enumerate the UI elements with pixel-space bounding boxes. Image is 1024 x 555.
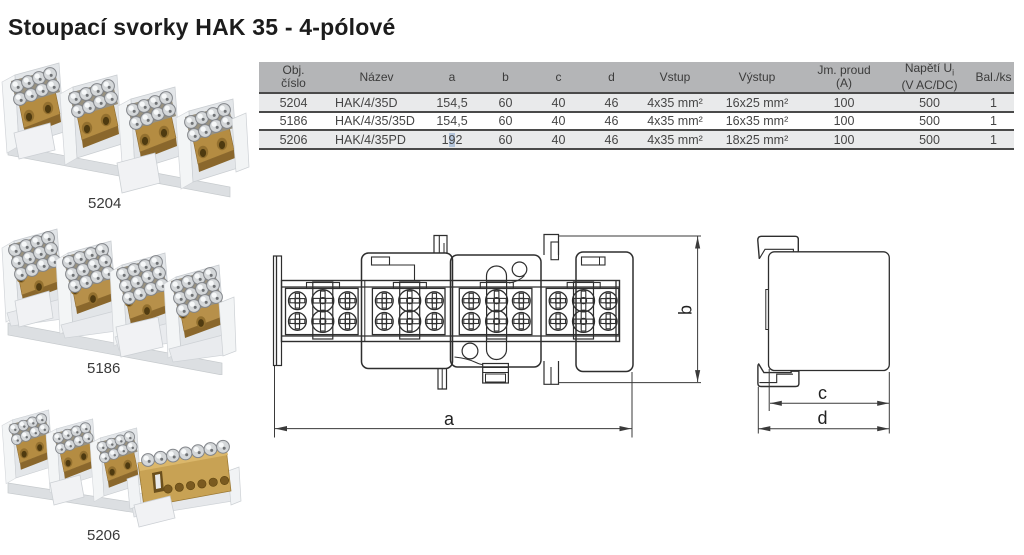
svg-text:c: c (818, 383, 827, 403)
svg-text:a: a (444, 409, 455, 429)
svg-text:b: b (676, 305, 696, 315)
svg-text:d: d (818, 408, 828, 428)
